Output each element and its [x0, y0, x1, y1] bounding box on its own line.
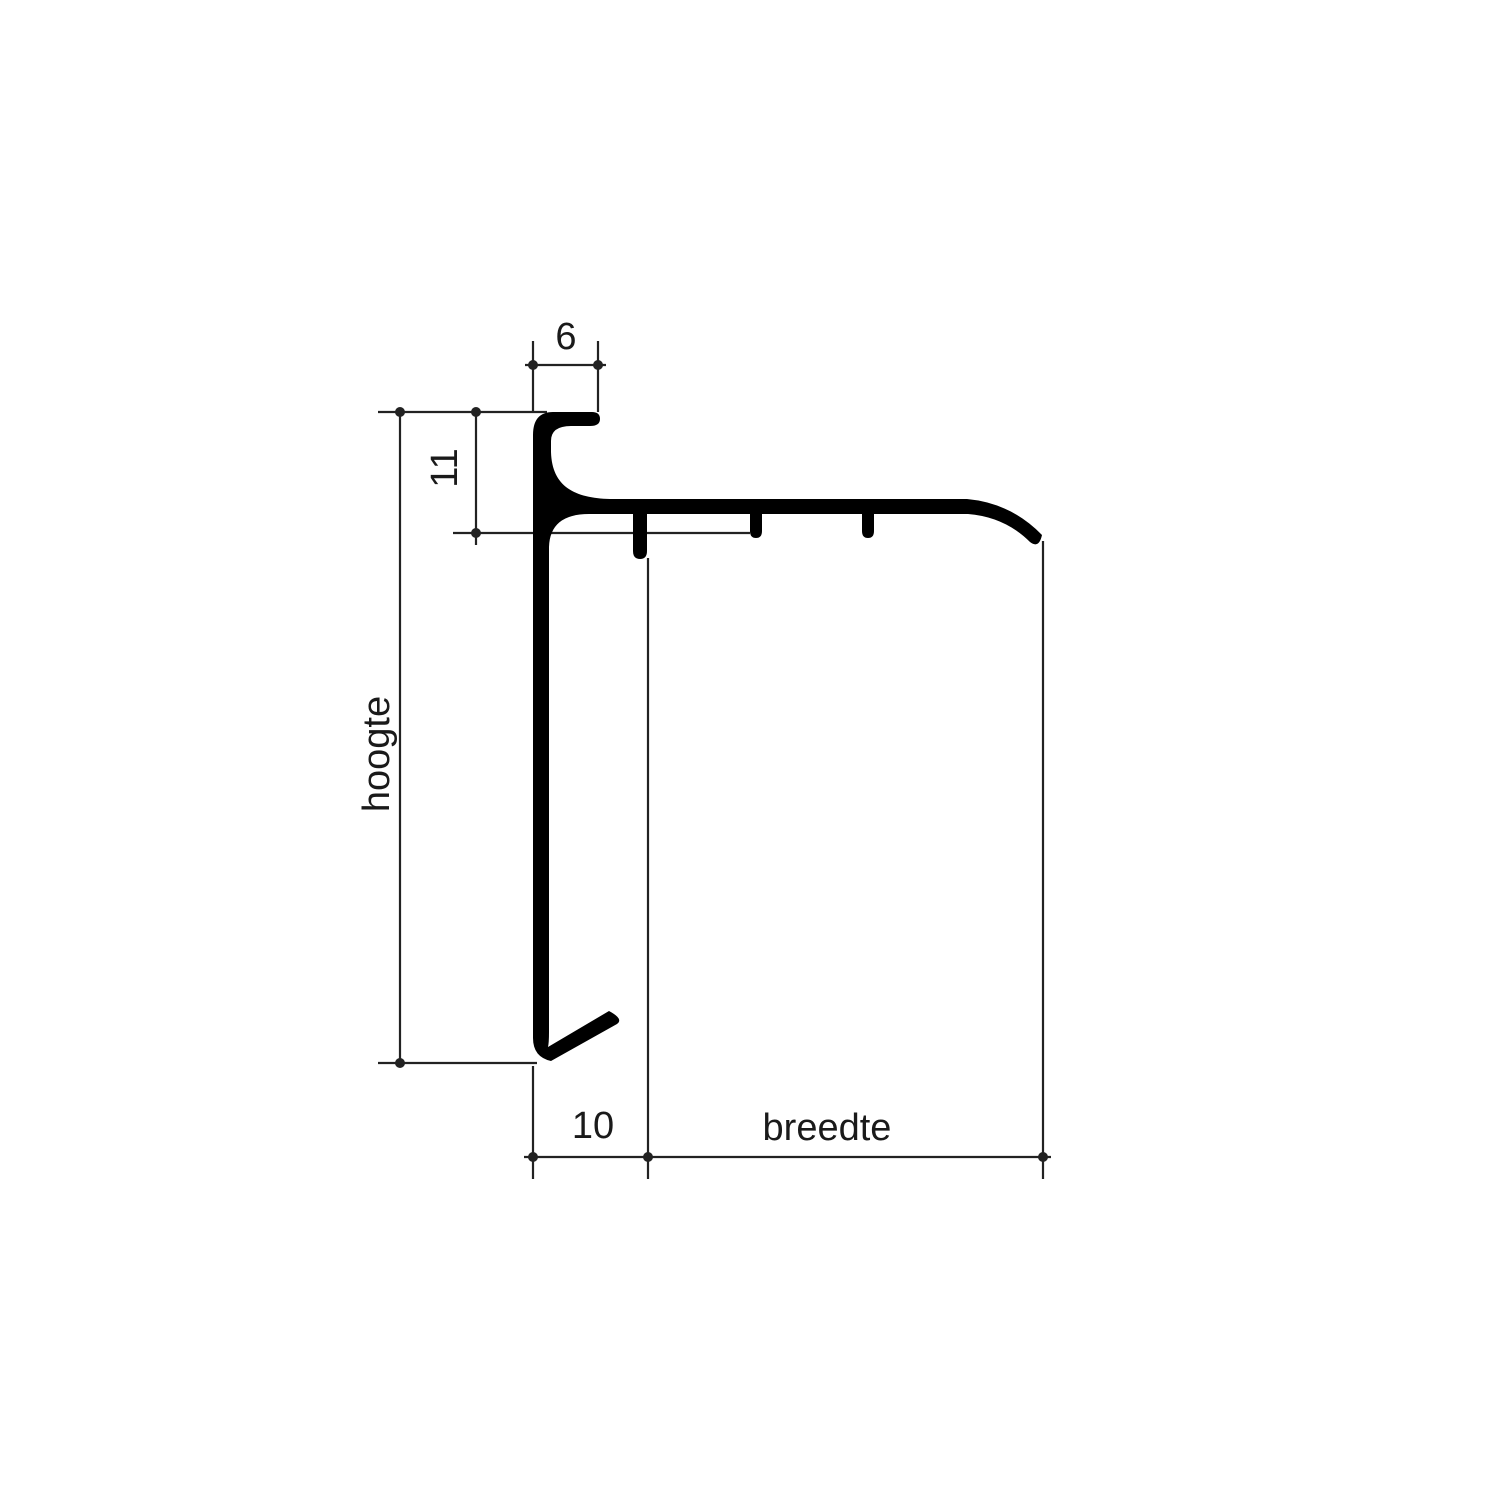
dot-upper-height-top	[471, 407, 481, 417]
dimension-labels: 6 11 hoogte 10 breedte	[356, 316, 891, 1149]
profile-outline	[533, 412, 1042, 1061]
dot-height-top	[395, 407, 405, 417]
dot-upper-height-bottom	[471, 528, 481, 538]
label-hook-width: 10	[572, 1105, 614, 1147]
dot-bottom-right	[1038, 1152, 1048, 1162]
dimension-lines	[378, 341, 1051, 1179]
label-upper-height: 11	[424, 448, 466, 487]
dot-height-bottom	[395, 1058, 405, 1068]
dimension-dots	[395, 360, 1048, 1162]
dot-top-width-right	[593, 360, 603, 370]
dot-bottom-left	[528, 1152, 538, 1162]
dot-top-width-left	[528, 360, 538, 370]
label-height: hoogte	[356, 696, 398, 812]
label-width: breedte	[763, 1107, 892, 1149]
dot-bottom-middle	[643, 1152, 653, 1162]
label-top-width: 6	[555, 316, 576, 358]
drawing-canvas: 6 11 hoogte 10 breedte	[0, 0, 1500, 1500]
profile-technical-drawing: 6 11 hoogte 10 breedte	[0, 0, 1500, 1500]
